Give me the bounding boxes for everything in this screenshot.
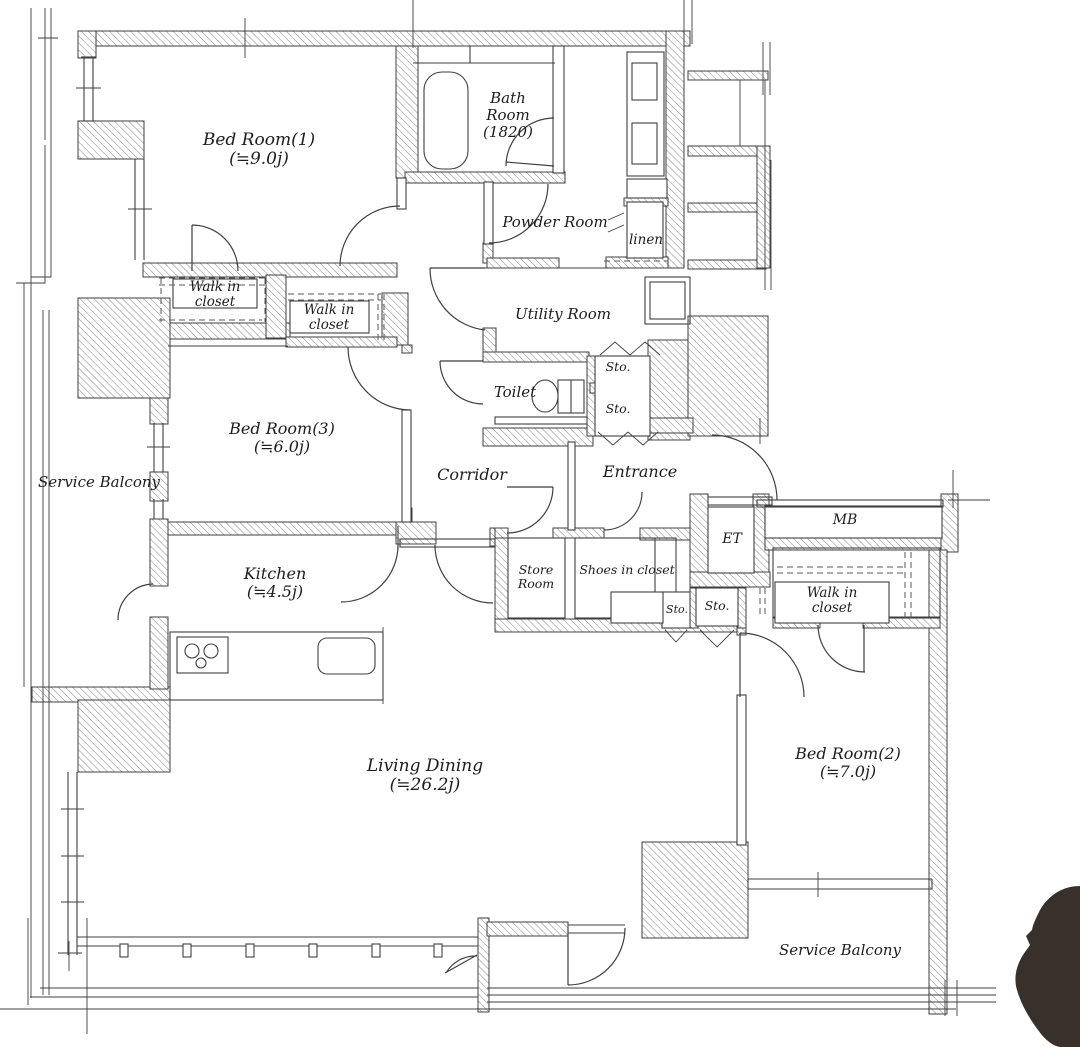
shaft-box [632,123,657,164]
kitchen-sink [318,638,375,674]
room-name: Bed Room(3) [229,420,335,438]
stove-burner [185,644,199,658]
floor-plan-drawing [0,0,1080,1047]
room-size: (≒4.5j) [244,583,307,601]
label-toilet: Toilet [494,384,536,401]
room-name: Walk in [807,586,858,601]
room-name: Walk in [304,303,355,318]
room-name: Sto. [666,604,688,616]
room-name: Corridor [437,466,507,484]
washer-pan [645,277,690,324]
floor-plan: Bed Room(1) (≒9.0j) Bath Room (1820) Pow… [0,0,1080,1047]
room-name: Store [518,563,554,577]
label-mb: MB [833,513,858,529]
label-et: ET [722,532,742,548]
label-corridor: Corridor [437,466,507,484]
window-living-west [61,772,84,955]
door-bedroom2 [740,633,804,697]
room-name: Bed Room(1) [203,131,315,150]
door-entrance-hall [604,492,642,530]
room-name: MB [833,513,858,529]
door-balcony-partition [445,955,477,973]
window-bedroom2-south [748,872,932,897]
room-name: Sto. [705,599,730,613]
door-utility-room [430,268,485,330]
door-kitchen-left [341,545,398,602]
label-storage-utility-2: Sto. [606,402,631,416]
room-size: (≒7.0j) [795,763,901,781]
door-kitchen-balcony [118,584,153,620]
label-powder-room: Powder Room [502,214,607,231]
room-name: Service Balcony [38,474,160,491]
label-linen: linen [629,233,663,248]
door-kitchen-right [435,545,493,603]
kitchen-counter [170,632,383,700]
room-name: closet [190,295,241,310]
label-storage-entrance-1: Sto. [666,604,688,616]
label-living-dining: Living Dining (≒26.2j) [367,757,483,795]
shelf-box [627,179,667,198]
door-store-room [507,487,553,533]
room-name: Service Balcony [779,942,901,959]
window-living-south [58,937,478,971]
room-name: Bed Room(2) [795,745,901,763]
shaft-box [632,63,657,100]
door-walkin3 [818,625,865,672]
door-living-balcony [568,928,625,985]
label-bedroom3: Bed Room(3) (≒6.0j) [229,420,335,456]
label-bathroom: Bath Room (1820) [483,90,533,140]
room-name: Room [483,107,533,124]
room-name: Kitchen [244,565,307,583]
room-name: Bath [483,90,533,107]
label-service-balcony-right: Service Balcony [779,942,901,959]
room-name: linen [629,233,663,248]
label-walkin-closet-2: Walk in closet [304,303,355,333]
label-walkin-closet-1: Walk in closet [190,280,241,310]
room-name: Utility Room [515,306,611,323]
window-bedroom1-lower [128,159,152,260]
room-size: (≒9.0j) [203,150,315,169]
label-store-room: Store Room [518,563,554,591]
label-utility-room: Utility Room [515,306,611,323]
label-shoes-in-closet: Shoes in closet [579,563,674,577]
bathtub [424,72,468,169]
stove-burner [204,644,218,658]
label-bedroom2: Bed Room(2) (≒7.0j) [795,745,901,781]
room-name: Walk in [190,280,241,295]
window-balcony-door-sill [568,925,625,933]
door-bedroom1 [340,206,400,266]
room-name: closet [304,318,355,333]
label-bedroom1: Bed Room(1) (≒9.0j) [203,131,315,169]
page-corner-blob [1015,886,1080,1047]
linen-box [627,202,663,258]
room-name: Shoes in closet [579,563,674,577]
room-name: Sto. [606,360,631,374]
room-name: Sto. [606,402,631,416]
room-name: Room [518,577,554,591]
room-name: closet [807,601,858,616]
room-size: (≒26.2j) [367,776,483,795]
room-name: Toilet [494,384,536,401]
label-storage-entrance-2: Sto. [705,599,730,613]
label-service-balcony-left: Service Balcony [38,474,160,491]
room-name: Entrance [603,463,677,481]
door-toilet [440,361,483,404]
door-front [712,435,777,500]
shoes-lower-shelf [611,592,663,623]
room-size: (≒6.0j) [229,438,335,456]
stove-burner [196,658,206,668]
label-kitchen: Kitchen (≒4.5j) [244,565,307,601]
label-storage-utility-1: Sto. [606,360,631,374]
label-walkin-closet-3: Walk in closet [807,586,858,616]
label-entrance: Entrance [603,463,677,481]
room-size: (1820) [483,124,533,141]
window-bedroom3 [147,423,170,519]
room-name: ET [722,532,742,548]
door-bedroom3 [348,347,410,410]
room-name: Powder Room [502,214,607,231]
room-name: Living Dining [367,757,483,776]
window-bedroom1-upper [76,57,101,121]
